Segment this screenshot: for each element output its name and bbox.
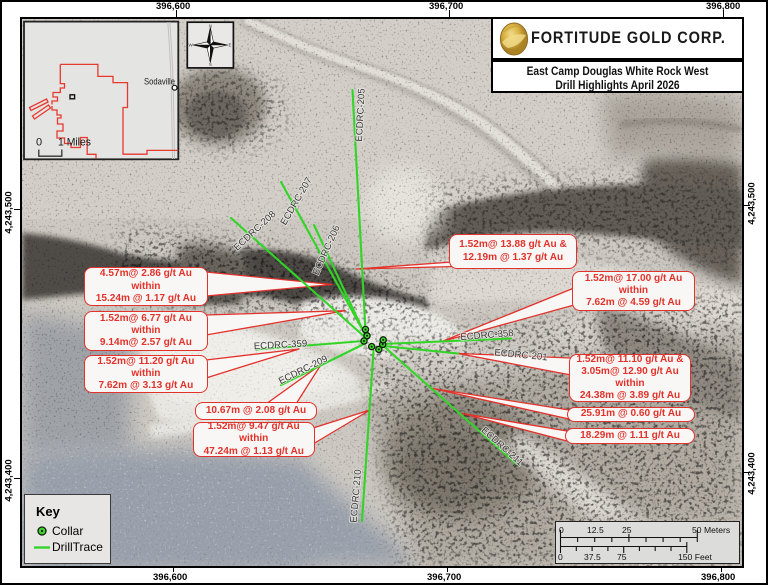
svg-text:150 Feet: 150 Feet [678,552,713,562]
svg-text:Sodaville: Sodaville [144,76,175,87]
svg-text:12.5: 12.5 [587,525,604,535]
svg-text:0: 0 [558,552,563,562]
svg-text:37.5: 37.5 [584,552,601,562]
svg-text:0: 0 [559,525,564,535]
svg-text:1 Miles: 1 Miles [58,137,91,149]
svg-text:75: 75 [617,552,627,562]
svg-text:0: 0 [36,137,42,149]
svg-text:N: N [209,23,212,28]
svg-text:E: E [229,43,232,48]
svg-text:S: S [209,62,212,67]
svg-text:25: 25 [622,525,632,535]
